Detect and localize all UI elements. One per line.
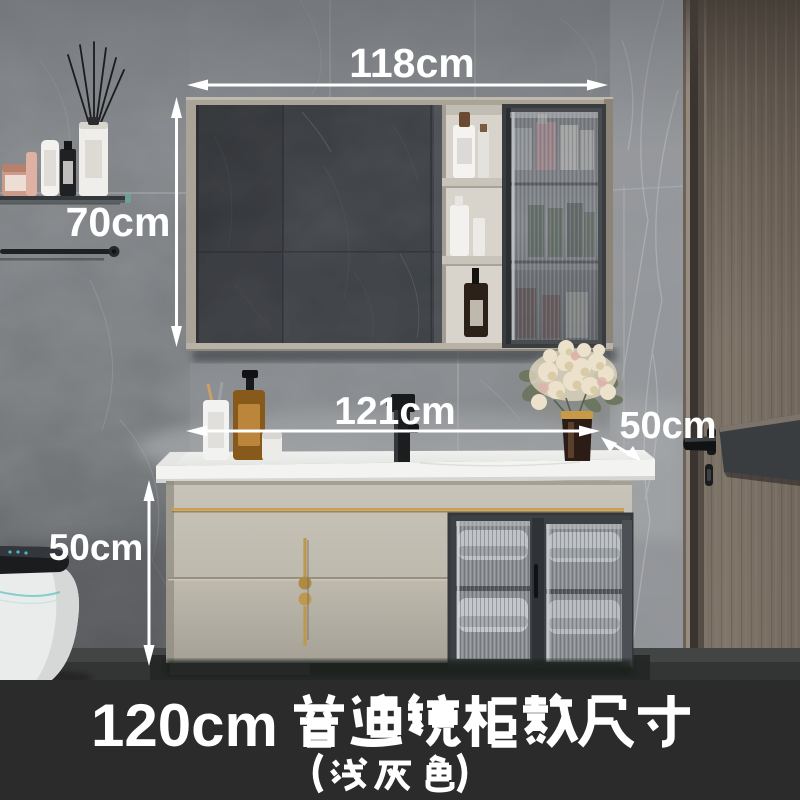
svg-text:70cm: 70cm <box>66 199 171 245</box>
svg-text:121cm: 121cm <box>334 390 455 433</box>
svg-text:118cm: 118cm <box>349 40 474 86</box>
svg-text:50cm: 50cm <box>49 527 144 568</box>
svg-text:50cm: 50cm <box>619 405 716 447</box>
svg-text:120cm: 120cm <box>91 692 278 759</box>
